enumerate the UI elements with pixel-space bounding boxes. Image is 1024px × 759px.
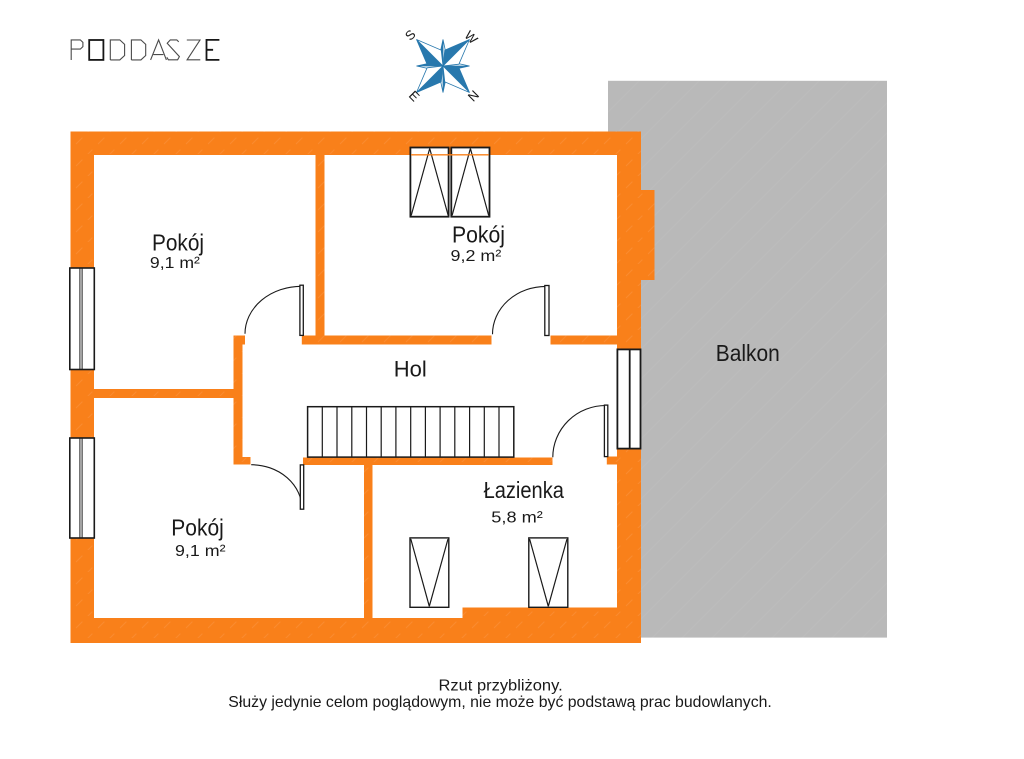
svg-text:E: E: [406, 88, 423, 105]
svg-text:9,1 m²: 9,1 m²: [150, 255, 201, 272]
svg-text:Hol: Hol: [394, 356, 427, 381]
svg-text:Balkon: Balkon: [716, 340, 780, 366]
svg-text:9,2 m²: 9,2 m²: [451, 248, 503, 265]
svg-text:Pokój: Pokój: [452, 222, 505, 248]
svg-text:Służy jedynie celom poglądowym: Służy jedynie celom poglądowym, nie może…: [228, 694, 772, 711]
svg-text:Łazienka: Łazienka: [484, 477, 565, 503]
svg-text:5,8 m²: 5,8 m²: [491, 509, 543, 526]
svg-text:Rzut przybliżony.: Rzut przybliżony.: [439, 678, 563, 695]
svg-text:Pokój: Pokój: [152, 229, 204, 255]
svg-text:Pokój: Pokój: [171, 515, 224, 541]
svg-text:S: S: [402, 26, 419, 43]
svg-text:9,1 m²: 9,1 m²: [175, 543, 226, 560]
